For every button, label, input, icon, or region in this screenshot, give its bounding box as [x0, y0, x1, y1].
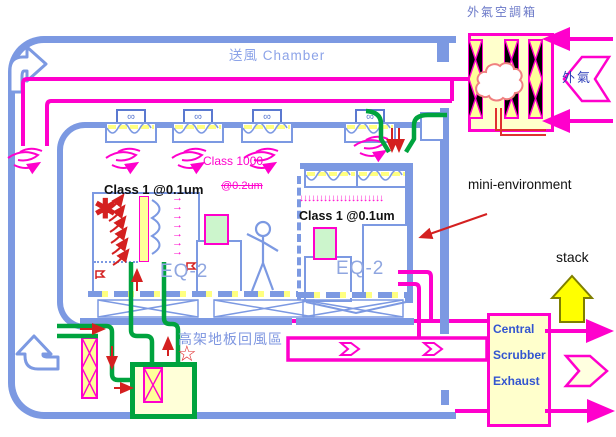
cleanroom-wall-left	[57, 170, 63, 282]
mini-env-filter	[356, 169, 410, 188]
perforated-floor-left	[88, 291, 298, 297]
scrubber-label-3: Exhaust	[493, 375, 540, 388]
makeup-air-unit-label: 外氣空調箱	[467, 6, 537, 19]
ffu-filter	[344, 122, 396, 143]
outside-air-label: 外氣	[562, 71, 592, 85]
contamination-asterisk-icon: ✱	[94, 195, 117, 225]
plenum-slab-left	[80, 318, 292, 325]
plenum-slab-right	[296, 318, 414, 325]
mini-environment-label: mini-environment	[468, 178, 572, 193]
downflow-arrows-icon: ↓↓↓↓↓↓↓↓↓↓↓↓↓↓↓↓↓↓↓↓↓	[299, 193, 383, 204]
stack-arrow-icon	[552, 276, 592, 322]
filter-media	[347, 125, 393, 129]
supply-duct-end-stub	[437, 36, 449, 62]
supply-chamber-label: 送風 Chamber	[229, 49, 325, 64]
cleanroom-wall-top-left	[57, 122, 97, 180]
star-marker-icon: ☆	[177, 342, 197, 366]
cleanroom-airflow-diagram: ∞ ∞ ∞ ∞ Central Scrubber Exhaust	[0, 0, 616, 437]
eq2-left-label: EQ-2	[160, 262, 208, 283]
mini-env-filter	[304, 169, 358, 188]
class-1-right-label: Class 1 @0.1um	[299, 210, 395, 224]
ffu-filter	[105, 122, 157, 143]
class-02um-strikethrough-label: @0.2um	[221, 180, 263, 192]
filter-media	[244, 125, 290, 129]
ffu-filter	[241, 122, 293, 143]
makeup-air-unit-box	[468, 33, 554, 132]
return-grille-box	[420, 112, 445, 141]
filter-media	[175, 125, 221, 129]
equipment-filter-strip	[139, 196, 149, 262]
ceiling-segment	[289, 122, 344, 128]
scrubber-outlet-chevron	[566, 356, 607, 386]
filter-media	[359, 172, 407, 176]
sideflow-arrows-icon: → → → → → → →	[172, 194, 183, 257]
class-1-left-label: Class 1 @0.1um	[104, 183, 203, 197]
class-1000-label: Class 1000	[203, 155, 263, 168]
bottom-duct-stub	[441, 390, 449, 405]
eq2-right-label: EQ-2	[336, 259, 384, 280]
stack-label: stack	[556, 250, 589, 265]
right-wall-duct	[440, 108, 449, 334]
dashed-equipment-line	[94, 261, 138, 263]
local-scrubber-box	[130, 362, 197, 419]
scrubber-label-1: Central	[493, 323, 534, 336]
central-scrubber-box: Central Scrubber Exhaust	[487, 313, 551, 427]
perforated-floor-right	[300, 292, 410, 298]
load-port-left	[204, 214, 229, 245]
filter-media	[307, 172, 355, 176]
filter-media	[108, 125, 154, 129]
ceiling-segment	[88, 122, 105, 128]
load-port-right	[313, 227, 337, 260]
ffu-filter	[172, 122, 224, 143]
scrubber-label-2: Scrubber	[493, 349, 546, 362]
